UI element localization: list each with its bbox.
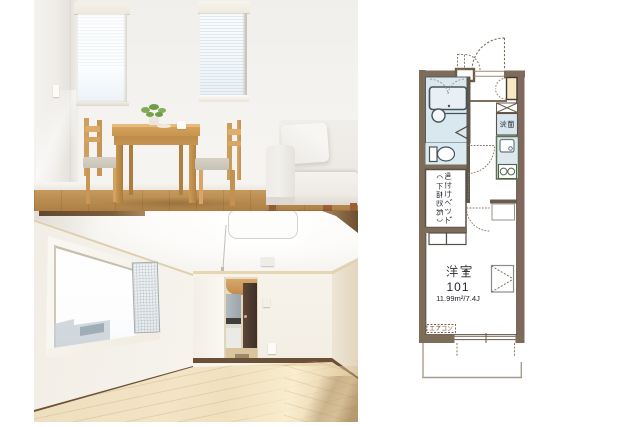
svg-text:101: 101	[446, 280, 469, 294]
svg-text:11.99m²/7.4J: 11.99m²/7.4J	[436, 294, 480, 303]
